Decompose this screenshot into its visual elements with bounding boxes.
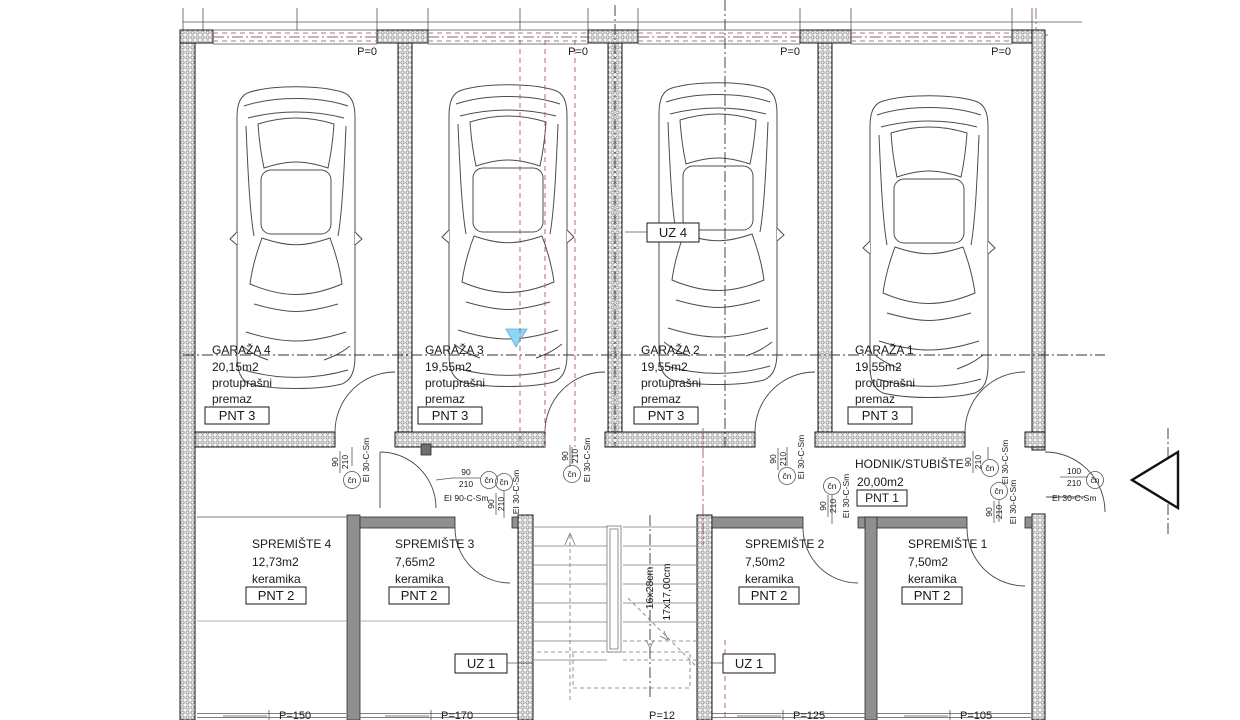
svg-text:90: 90 bbox=[984, 507, 994, 517]
gate-level-labels: P=0 P=0 P=0 P=0 bbox=[357, 46, 1011, 58]
garage2-door-arc bbox=[755, 372, 815, 432]
svg-text:90: 90 bbox=[818, 501, 828, 511]
svg-text:210: 210 bbox=[459, 479, 473, 489]
svg-text:90: 90 bbox=[486, 499, 496, 509]
svg-text:UZ 4: UZ 4 bbox=[659, 225, 687, 240]
svg-text:EI 30-C-Sm: EI 30-C-Sm bbox=[511, 470, 521, 514]
door-label-garage1: 90 210 čn EI 30-C-Sm bbox=[963, 440, 1010, 484]
spremiste-4-room-label: SPREMIŠTE 4 12,73m2 keramika PNT 2 bbox=[246, 536, 332, 604]
bottom-openings bbox=[197, 710, 1031, 720]
svg-text:P=125: P=125 bbox=[793, 710, 825, 720]
svg-text:P=0: P=0 bbox=[780, 46, 800, 58]
svg-text:210: 210 bbox=[828, 499, 838, 513]
svg-text:7,50m2: 7,50m2 bbox=[745, 555, 785, 569]
door-label-garage2: 90 210 čn EI 30-C-Sm bbox=[768, 435, 806, 485]
svg-text:EI 30-C-Sm: EI 30-C-Sm bbox=[1052, 493, 1096, 503]
svg-text:SPREMIŠTE 4: SPREMIŠTE 4 bbox=[252, 536, 332, 551]
svg-text:P=105: P=105 bbox=[960, 710, 992, 720]
garage-1-room-label: GARAŽA 1 19,55m2 protuprašni premaz PNT … bbox=[848, 342, 915, 424]
svg-text:čn: čn bbox=[828, 481, 837, 491]
entrance-arrow-icon bbox=[1132, 452, 1178, 508]
svg-text:čn: čn bbox=[348, 475, 357, 485]
svg-text:EI 30-C-Sm: EI 30-C-Sm bbox=[796, 435, 806, 479]
svg-text:PNT 1: PNT 1 bbox=[865, 491, 899, 505]
svg-text:P=12: P=12 bbox=[649, 710, 675, 720]
svg-text:P=0: P=0 bbox=[568, 46, 588, 58]
car-icon bbox=[442, 85, 574, 387]
svg-text:čn: čn bbox=[1091, 475, 1100, 485]
svg-text:19,55m2: 19,55m2 bbox=[641, 360, 688, 374]
svg-text:čn: čn bbox=[995, 486, 1004, 496]
svg-text:SPREMIŠTE 2: SPREMIŠTE 2 bbox=[745, 536, 825, 551]
svg-text:GARAŽA 3: GARAŽA 3 bbox=[425, 342, 484, 357]
svg-text:P=0: P=0 bbox=[991, 46, 1011, 58]
door-label-entrance: 100 210 čn EI 30-C-Sm bbox=[1052, 466, 1104, 503]
svg-text:GARAŽA 4: GARAŽA 4 bbox=[212, 342, 271, 357]
svg-text:EI 30-C-Sm: EI 30-C-Sm bbox=[361, 438, 371, 482]
svg-text:210: 210 bbox=[340, 455, 350, 469]
svg-text:UZ 1: UZ 1 bbox=[735, 656, 763, 671]
svg-text:210: 210 bbox=[570, 449, 580, 463]
spremiste-1-room-label: SPREMIŠTE 1 7,50m2 keramika PNT 2 bbox=[902, 536, 988, 604]
svg-text:P=170: P=170 bbox=[441, 710, 473, 720]
floor-plan-drawing: GARAŽA 4 20,15m2 protuprašni premaz PNT … bbox=[0, 0, 1240, 720]
door-label-garage3: 90 210 čn EI 30-C-Sm bbox=[560, 438, 592, 483]
svg-text:čn: čn bbox=[485, 475, 494, 485]
svg-text:UZ 1: UZ 1 bbox=[467, 656, 495, 671]
spremiste-2-room-label: SPREMIŠTE 2 7,50m2 keramika PNT 2 bbox=[739, 536, 825, 604]
svg-text:SPREMIŠTE 1: SPREMIŠTE 1 bbox=[908, 536, 988, 551]
svg-text:keramika: keramika bbox=[395, 572, 444, 586]
svg-text:premaz: premaz bbox=[425, 392, 465, 406]
svg-text:7,65m2: 7,65m2 bbox=[395, 555, 435, 569]
hodnik-room-label: HODNIK/STUBIŠTE 20,00m2 PNT 1 bbox=[855, 456, 964, 506]
svg-text:čn: čn bbox=[568, 469, 577, 479]
svg-text:premaz: premaz bbox=[641, 392, 681, 406]
door-label-corridor: 90 210 čn EI 90-C-Sm bbox=[436, 467, 498, 503]
spremiste-3-room-label: SPREMIŠTE 3 7,65m2 keramika PNT 2 bbox=[389, 536, 475, 604]
svg-text:čn: čn bbox=[986, 463, 995, 473]
garage-3-room-label: GARAŽA 3 19,55m2 protuprašni premaz PNT … bbox=[418, 342, 485, 424]
svg-text:17x17,00cm: 17x17,00cm bbox=[661, 563, 673, 620]
uz1-marker-right: UZ 1 bbox=[712, 654, 775, 673]
svg-text:protuprašni: protuprašni bbox=[212, 376, 272, 390]
svg-text:keramika: keramika bbox=[745, 572, 794, 586]
svg-text:210: 210 bbox=[1067, 478, 1081, 488]
svg-text:12,73m2: 12,73m2 bbox=[252, 555, 299, 569]
svg-text:PNT 2: PNT 2 bbox=[914, 588, 951, 603]
svg-text:PNT 2: PNT 2 bbox=[401, 588, 438, 603]
svg-text:PNT 3: PNT 3 bbox=[219, 408, 256, 423]
svg-text:19,55m2: 19,55m2 bbox=[855, 360, 902, 374]
svg-text:GARAŽA 2: GARAŽA 2 bbox=[641, 342, 700, 357]
svg-text:16x28cm: 16x28cm bbox=[644, 566, 656, 609]
svg-text:protuprašni: protuprašni bbox=[641, 376, 701, 390]
stair-railing bbox=[607, 526, 621, 652]
svg-text:PNT 3: PNT 3 bbox=[648, 408, 685, 423]
svg-text:EI 30-C-Sm: EI 30-C-Sm bbox=[1008, 480, 1018, 524]
svg-text:EI 30-C-Sm: EI 30-C-Sm bbox=[841, 474, 851, 518]
svg-text:HODNIK/STUBIŠTE: HODNIK/STUBIŠTE bbox=[855, 456, 964, 471]
svg-text:90: 90 bbox=[461, 467, 471, 477]
door-label-spremiste1: čn 90 210 EI 30-C-Sm bbox=[984, 480, 1018, 524]
svg-text:P=0: P=0 bbox=[357, 46, 377, 58]
garage-2-room-label: GARAŽA 2 19,55m2 protuprašni premaz PNT … bbox=[634, 342, 701, 424]
svg-text:PNT 3: PNT 3 bbox=[432, 408, 469, 423]
door-label-garage4: 90 210 čn EI 30-C-Sm bbox=[330, 438, 371, 489]
svg-text:EI 30-C-Sm: EI 30-C-Sm bbox=[1000, 440, 1010, 484]
svg-text:PNT 3: PNT 3 bbox=[862, 408, 899, 423]
garage-4-room-label: GARAŽA 4 20,15m2 protuprašni premaz PNT … bbox=[205, 342, 272, 424]
svg-text:PNT 2: PNT 2 bbox=[751, 588, 788, 603]
svg-text:EI 90-C-Sm: EI 90-C-Sm bbox=[444, 493, 488, 503]
uz4-marker: UZ 4 bbox=[625, 223, 699, 242]
svg-text:protuprašni: protuprašni bbox=[855, 376, 915, 390]
svg-text:90: 90 bbox=[560, 451, 570, 461]
svg-text:čn: čn bbox=[500, 477, 509, 487]
stair-dimension-labels: 16x28cm 17x17,00cm bbox=[644, 563, 673, 620]
svg-text:protuprašni: protuprašni bbox=[425, 376, 485, 390]
svg-text:90: 90 bbox=[963, 457, 973, 467]
svg-text:premaz: premaz bbox=[855, 392, 895, 406]
svg-text:7,50m2: 7,50m2 bbox=[908, 555, 948, 569]
svg-text:SPREMIŠTE 3: SPREMIŠTE 3 bbox=[395, 536, 475, 551]
svg-text:210: 210 bbox=[778, 452, 788, 466]
svg-text:90: 90 bbox=[330, 457, 340, 467]
door-label-spremiste2: čn 90 210 EI 30-C-Sm bbox=[818, 474, 851, 524]
svg-text:100: 100 bbox=[1067, 466, 1081, 476]
svg-text:premaz: premaz bbox=[212, 392, 252, 406]
svg-text:P=150: P=150 bbox=[279, 710, 311, 720]
svg-text:19,55m2: 19,55m2 bbox=[425, 360, 472, 374]
svg-text:PNT 2: PNT 2 bbox=[258, 588, 295, 603]
svg-text:keramika: keramika bbox=[908, 572, 957, 586]
svg-text:20,15m2: 20,15m2 bbox=[212, 360, 259, 374]
svg-text:keramika: keramika bbox=[252, 572, 301, 586]
svg-text:čn: čn bbox=[783, 471, 792, 481]
svg-text:90: 90 bbox=[768, 454, 778, 464]
svg-text:20,00m2: 20,00m2 bbox=[857, 475, 904, 489]
svg-text:210: 210 bbox=[496, 497, 506, 511]
svg-text:EI 30-C-Sm: EI 30-C-Sm bbox=[582, 438, 592, 482]
parapet-labels: P=150 P=170 P=12 P=125 P=105 bbox=[279, 710, 992, 720]
corridor-door-arc bbox=[380, 452, 436, 508]
svg-text:210: 210 bbox=[994, 505, 1004, 519]
floor-plan-page: GARAŽA 4 20,15m2 protuprašni premaz PNT … bbox=[0, 0, 1240, 720]
svg-text:GARAŽA 1: GARAŽA 1 bbox=[855, 342, 914, 357]
